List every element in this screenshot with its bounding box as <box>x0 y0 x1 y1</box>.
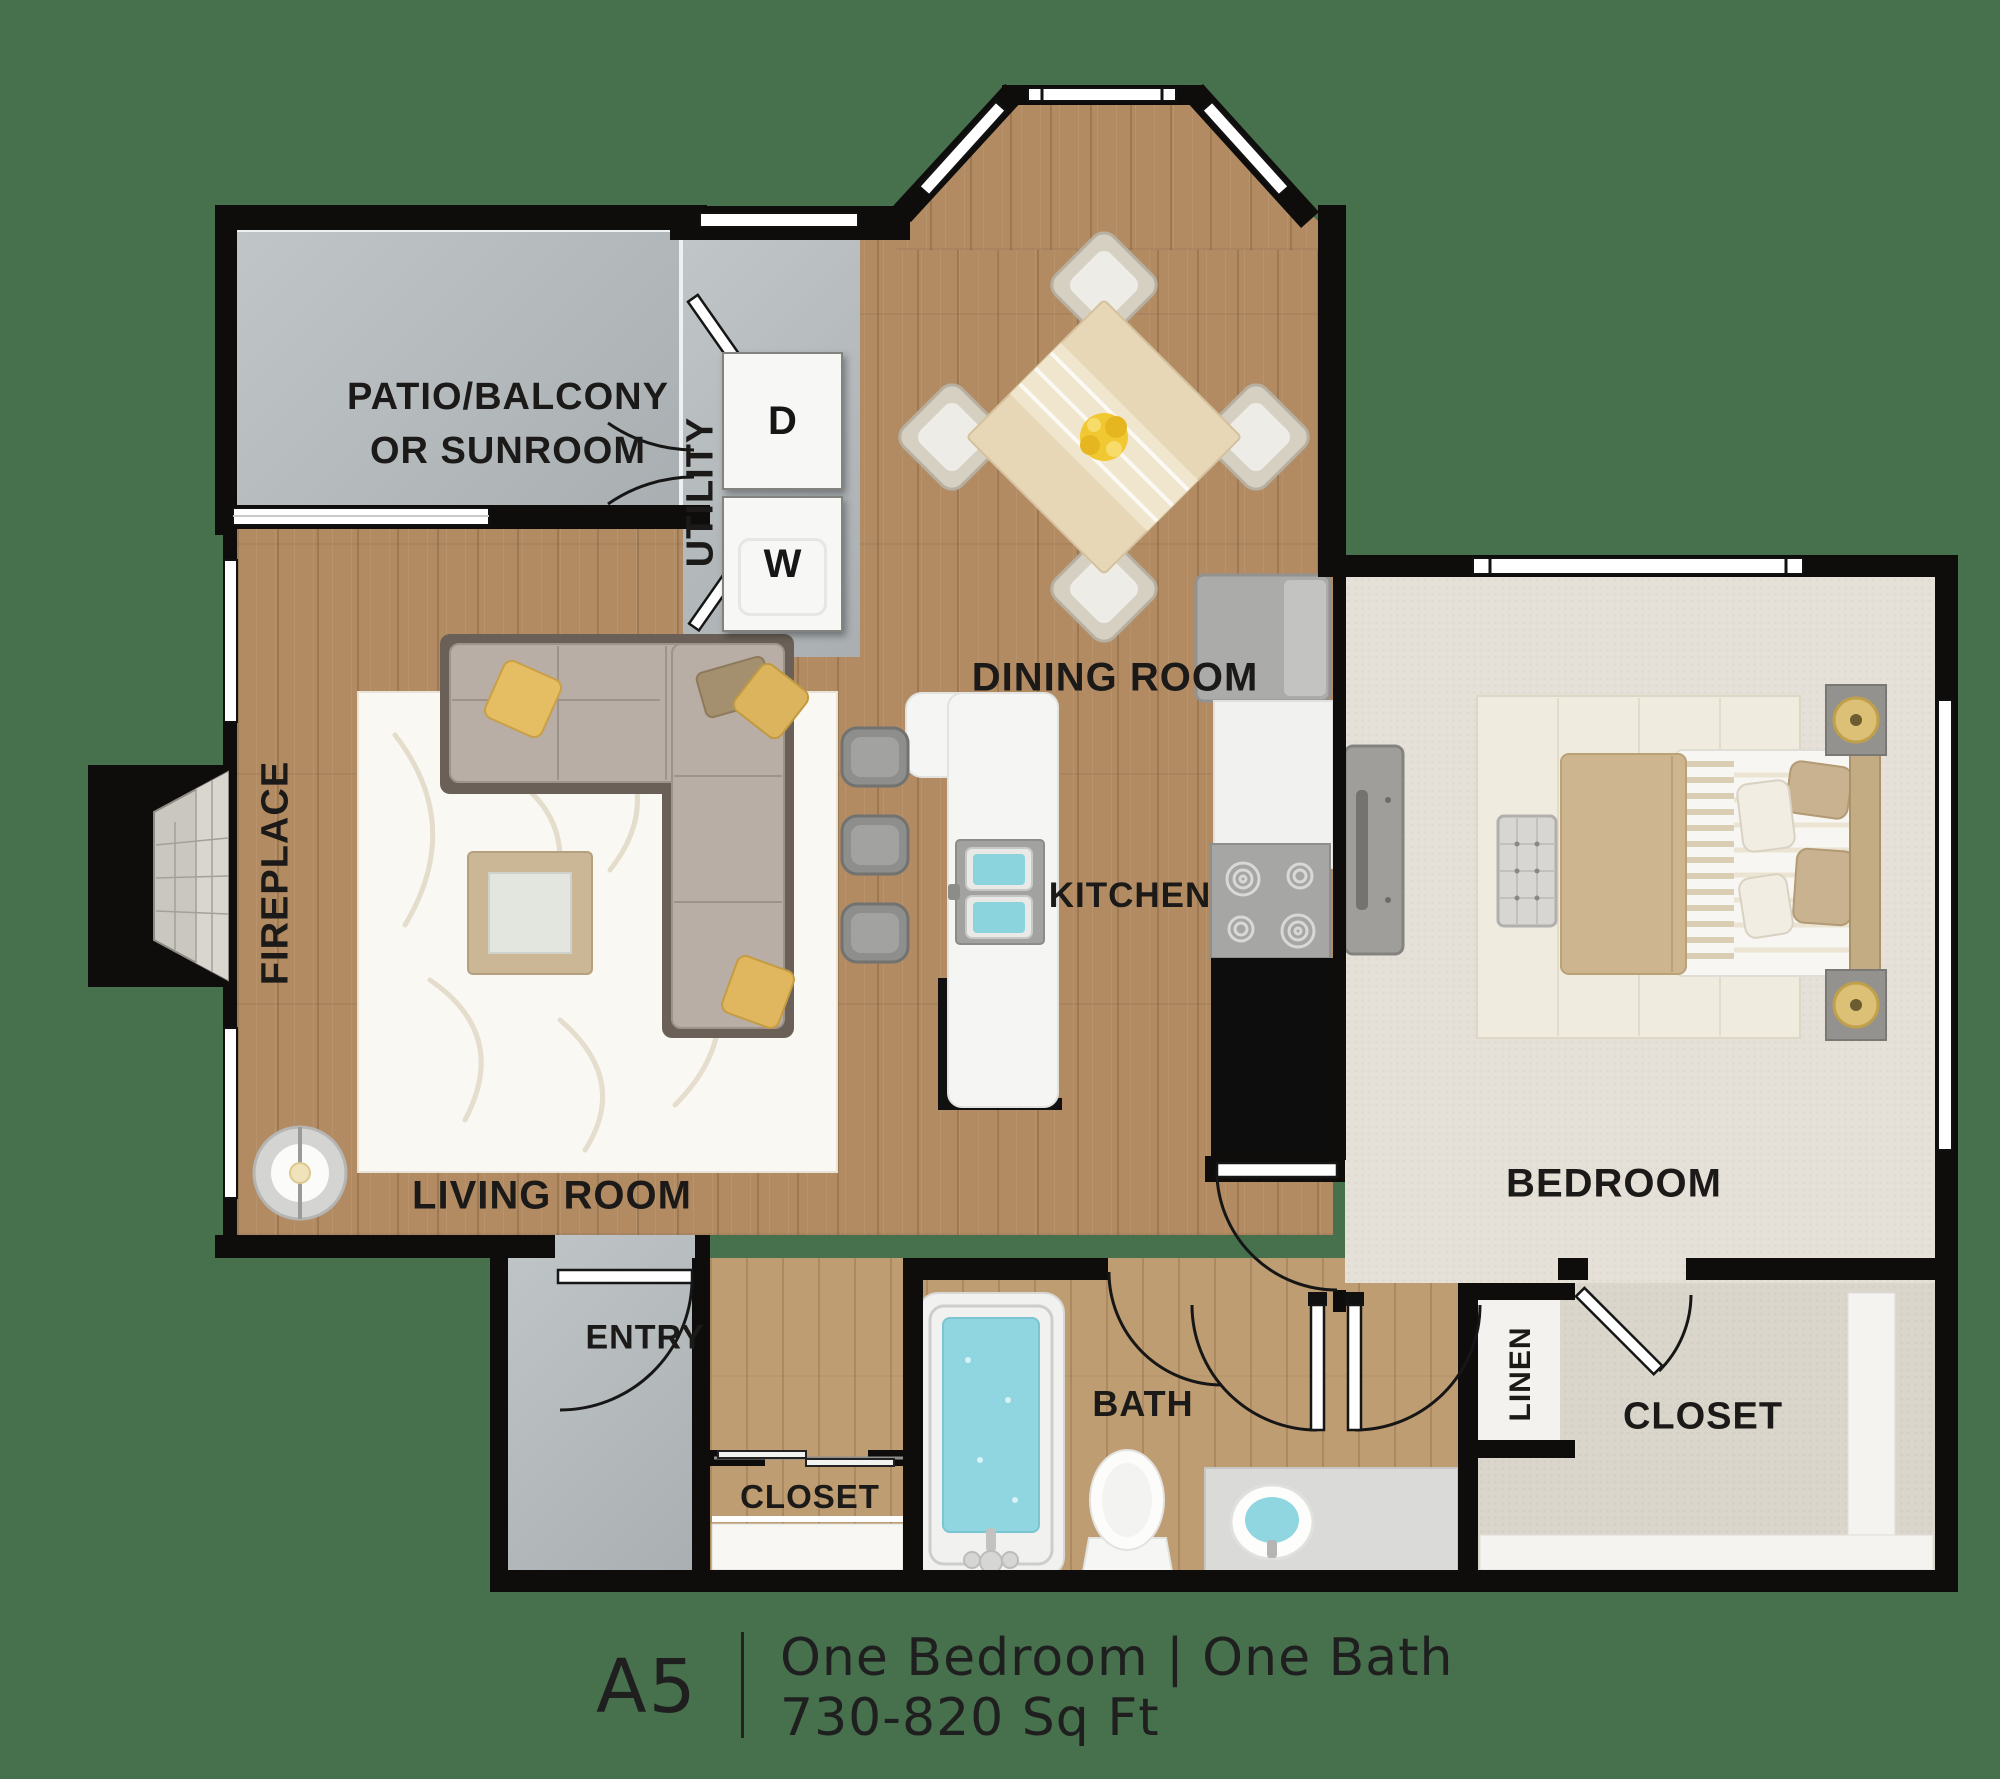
pillow <box>1738 873 1795 940</box>
washer: W <box>722 496 843 632</box>
stove-icon <box>1211 844 1330 958</box>
fireplace-label: FIREPLACE <box>255 761 298 985</box>
washer-drum <box>738 538 827 616</box>
footer-text: One Bedroom | One Bath 730-820 Sq Ft <box>780 1628 1453 1748</box>
kitchen-sink-icon <box>948 840 1044 944</box>
dining-room-label: DINING ROOM <box>972 656 1259 701</box>
window <box>1028 88 1176 101</box>
closet-door <box>1576 1288 1691 1374</box>
living-room-label: LIVING ROOM <box>412 1174 692 1219</box>
window <box>700 213 858 227</box>
kitchen-label: KITCHEN <box>1049 876 1212 916</box>
patio-label-line1: PATIO/BALCONY <box>347 370 669 424</box>
bedroom-label: BEDROOM <box>1506 1162 1722 1207</box>
footer-divider <box>741 1632 744 1738</box>
flowers-icon <box>1080 413 1128 461</box>
linen-label: LINEN <box>1504 1327 1538 1422</box>
bench <box>1498 816 1556 926</box>
kitchen-island <box>842 693 1062 1110</box>
pillow <box>1785 760 1854 820</box>
entry-closet-label: CLOSET <box>740 1478 880 1516</box>
bathtub-icon <box>918 1293 1064 1577</box>
bathroom-vanity <box>1205 1468 1458 1572</box>
bar-stool <box>842 728 908 786</box>
bath-label: BATH <box>1092 1383 1193 1425</box>
pillow <box>1792 848 1855 926</box>
toilet-icon <box>1082 1450 1173 1577</box>
kitchen-counter <box>1214 701 1333 868</box>
closet-shelf <box>712 1516 903 1570</box>
bath-door <box>1109 1272 1222 1385</box>
bar-stool <box>842 816 908 874</box>
utility-label: UTILITY <box>680 417 723 568</box>
entry-label: ENTRY <box>586 1319 705 1358</box>
window <box>224 560 237 722</box>
footer-details: One Bedroom | One Bath <box>780 1628 1453 1688</box>
bar-stool <box>842 904 908 962</box>
window <box>1938 700 1952 1150</box>
coffee-table <box>468 852 592 974</box>
plan-code: A5 <box>596 1644 698 1730</box>
bed <box>1561 746 1880 980</box>
bedroom-door <box>1217 1163 1337 1290</box>
floor-lamp-icon <box>254 1127 346 1219</box>
kitchen-base-cabinet <box>1211 958 1345 1158</box>
headboard <box>1850 746 1880 980</box>
footer-area: 730-820 Sq Ft <box>780 1688 1453 1748</box>
blanket <box>1561 754 1686 974</box>
window <box>224 1028 237 1198</box>
nightstand <box>1826 970 1886 1040</box>
window <box>923 105 1002 191</box>
patio-label: PATIO/BALCONY OR SUNROOM <box>347 370 669 478</box>
nightstand <box>1826 685 1886 755</box>
window <box>1206 105 1285 191</box>
pillow <box>1736 779 1796 853</box>
media-console <box>1345 746 1403 954</box>
floor-plan-graphics <box>0 0 2000 1779</box>
dryer: D <box>722 352 843 490</box>
patio-label-line2: OR SUNROOM <box>347 424 669 478</box>
dryer-label: D <box>768 399 797 444</box>
window <box>1473 558 1803 574</box>
bedroom-closet-label: CLOSET <box>1623 1396 1783 1439</box>
floor-plan: D W PATIO/BALCONY OR SUNROOM UTILITY DIN… <box>0 0 2000 1779</box>
hall-double-doors <box>1192 1292 1480 1430</box>
